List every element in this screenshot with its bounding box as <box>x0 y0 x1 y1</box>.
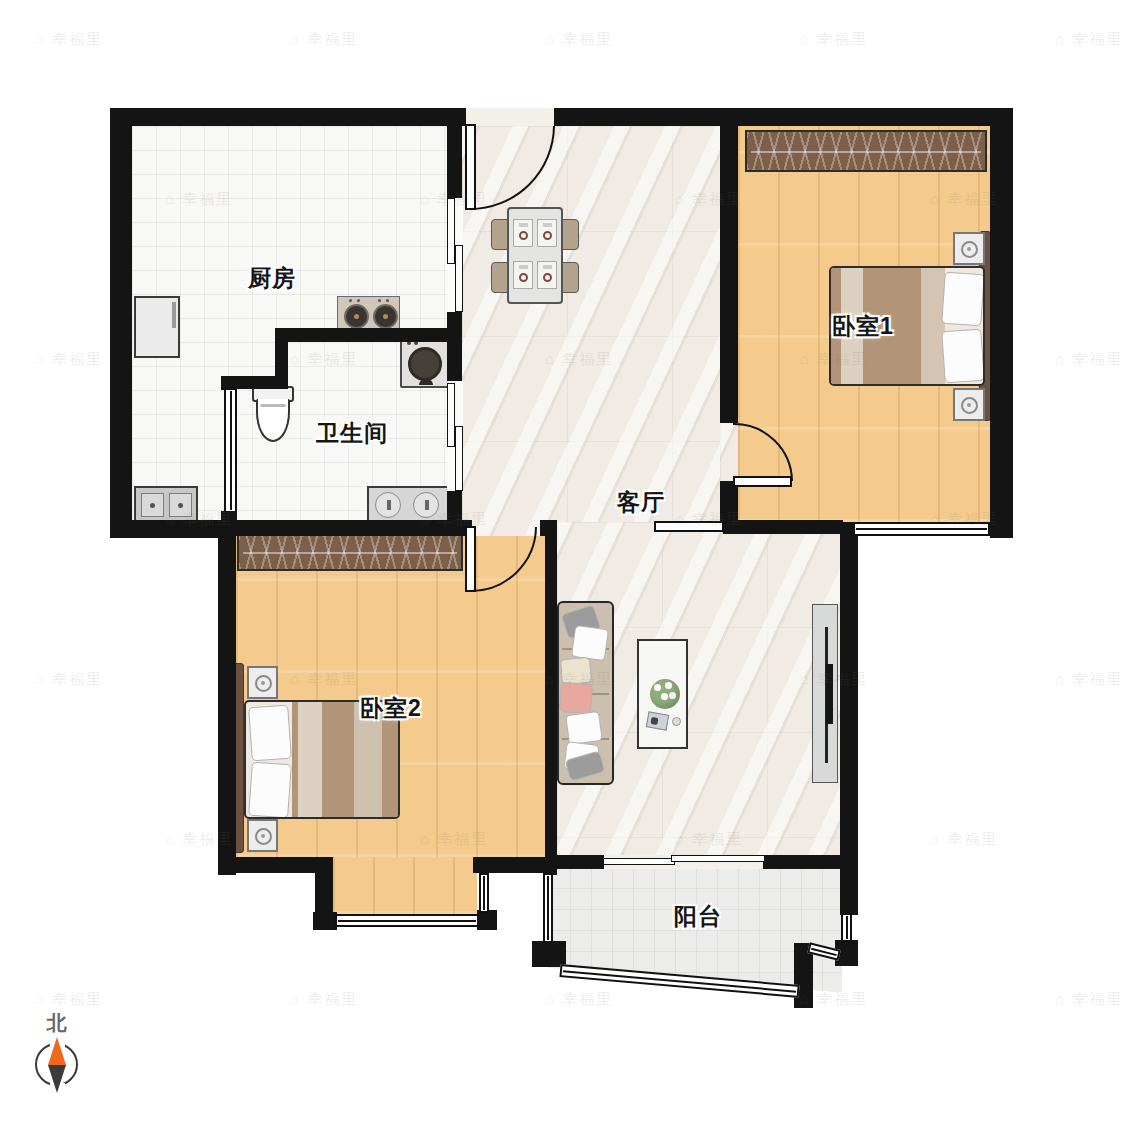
wall <box>218 520 236 875</box>
room-label-living: 客厅 <box>617 487 665 518</box>
compass-north-label: 北 <box>47 1010 68 1037</box>
watermark: ⌂ 幸福里 <box>1055 990 1123 1009</box>
bed-pillow <box>248 705 292 762</box>
place-setting <box>513 219 533 247</box>
room-label-balcony: 阳台 <box>674 901 722 932</box>
watermark: ⌂ 幸福里 <box>35 30 103 49</box>
bed-pillow <box>941 329 985 384</box>
bedroom2-wardrobe <box>237 532 463 571</box>
room-label-kitchen: 厨房 <box>248 263 296 294</box>
wall <box>548 855 604 869</box>
wall <box>763 855 842 869</box>
living-floor-upper <box>462 126 720 536</box>
bedroom1-window <box>853 522 990 536</box>
stove-knob <box>357 299 360 302</box>
dining-chair <box>562 262 579 293</box>
wall <box>313 912 337 930</box>
balcony-right-window <box>841 913 852 942</box>
coffee-table <box>637 639 688 749</box>
watermark: ⌂ 幸福里 <box>290 990 358 1009</box>
bathroom-sliding-door[interactable] <box>455 426 463 491</box>
bedroom1-nightstand <box>953 388 985 421</box>
sofa-pillow <box>560 657 592 686</box>
balcony-left-window <box>543 873 553 943</box>
dining-table <box>507 207 563 304</box>
place-setting <box>537 219 557 247</box>
wall <box>447 123 462 200</box>
faucet <box>425 500 429 510</box>
wall <box>545 528 557 875</box>
watermark: ⌂ 幸福里 <box>545 30 613 49</box>
entry-threshold <box>466 108 554 126</box>
bedroom2-nightstand <box>247 666 278 699</box>
bathroom-sliding-door[interactable] <box>447 383 455 447</box>
wall <box>447 310 462 385</box>
bay-window <box>335 914 479 927</box>
watermark: ⌂ 幸福里 <box>800 30 868 49</box>
dining-chair <box>491 262 508 293</box>
refrigerator <box>134 296 180 358</box>
refrigerator-handle <box>172 302 176 328</box>
bedroom1-door-leaf[interactable] <box>733 476 792 487</box>
wall <box>554 108 1013 126</box>
compass-needle-north <box>48 1037 66 1065</box>
watermark: ⌂ 幸福里 <box>930 830 998 849</box>
floor-plan: 厨房 卫生间 客厅 卧室1 卧室2 阳台 北 ⌂ 幸福里⌂ 幸福里⌂ 幸福里⌂ … <box>0 0 1125 1125</box>
blanket-stripe <box>298 702 322 819</box>
wall <box>477 910 497 930</box>
watermark: ⌂ 幸福里 <box>35 670 103 689</box>
watermark: ⌂ 幸福里 <box>290 30 358 49</box>
entry-door-leaf[interactable] <box>465 124 476 210</box>
toilet-seat-line <box>260 404 286 407</box>
stove-knob <box>349 299 352 302</box>
balcony-sliding-door[interactable] <box>671 855 765 862</box>
bedroom1-door-threshold <box>720 423 738 481</box>
bathroom-sink <box>367 486 449 522</box>
compass-needle-south <box>48 1065 66 1093</box>
sofa-pillow <box>571 625 609 661</box>
washer-lid-mark <box>419 379 433 385</box>
stove-burner <box>373 304 398 329</box>
washing-machine <box>400 336 449 388</box>
tv-center <box>826 664 833 724</box>
dining-chair <box>491 219 508 250</box>
sink-basin <box>141 493 164 517</box>
stove-knob <box>386 299 389 302</box>
kitchen-sliding-door[interactable] <box>455 245 463 312</box>
bay-side-window <box>479 873 489 913</box>
wall <box>275 328 462 342</box>
kitchen-sliding-door[interactable] <box>447 198 455 264</box>
stove-knob <box>378 299 381 302</box>
sofa-pillow-accent <box>559 682 593 714</box>
room-label-bathroom: 卫生间 <box>316 418 388 449</box>
place-setting <box>537 261 557 289</box>
bed-pillow <box>248 762 292 819</box>
washer-drum <box>408 347 442 381</box>
wall <box>990 108 1013 538</box>
watermark: ⌂ 幸福里 <box>545 990 613 1009</box>
wall <box>221 511 237 526</box>
bedroom2-bay-floor <box>333 857 477 914</box>
bed-pillow <box>941 272 985 327</box>
bathroom-interior-window <box>224 388 237 513</box>
watermark: ⌂ 幸福里 <box>35 990 103 1009</box>
tray <box>646 711 669 730</box>
bedroom2-door-leaf[interactable] <box>465 526 476 592</box>
wall <box>840 522 858 915</box>
bedroom2-nightstand <box>247 819 278 852</box>
room-label-bedroom2: 卧室2 <box>360 693 422 724</box>
sofa <box>557 601 614 785</box>
wall <box>720 481 738 524</box>
sofa-pillow <box>565 711 603 745</box>
gas-stove <box>337 296 400 331</box>
sink-basin <box>169 493 192 517</box>
kitchen-sink <box>134 486 198 523</box>
bedroom1-nightstand <box>953 232 985 265</box>
room-label-bedroom1: 卧室1 <box>832 311 894 342</box>
wall <box>720 126 738 423</box>
faucet <box>387 500 391 510</box>
wall <box>110 108 132 538</box>
watermark: ⌂ 幸福里 <box>1055 670 1123 689</box>
wall <box>447 488 462 522</box>
watermark: ⌂ 幸福里 <box>1055 30 1123 49</box>
wall <box>723 520 843 534</box>
watermark: ⌂ 幸福里 <box>35 350 103 369</box>
watermark: ⌂ 幸福里 <box>1055 350 1123 369</box>
wall <box>110 520 222 538</box>
bedroom1-wardrobe <box>745 130 987 172</box>
coaster <box>672 717 681 726</box>
place-setting <box>513 261 533 289</box>
wall <box>222 520 472 536</box>
ceiling-beam <box>654 521 724 532</box>
flower-vase <box>650 679 680 709</box>
dining-chair <box>562 219 579 250</box>
blanket-stripe <box>921 268 945 386</box>
wall <box>110 108 466 126</box>
balcony-sliding-door[interactable] <box>603 858 675 865</box>
stove-burner <box>344 304 369 329</box>
